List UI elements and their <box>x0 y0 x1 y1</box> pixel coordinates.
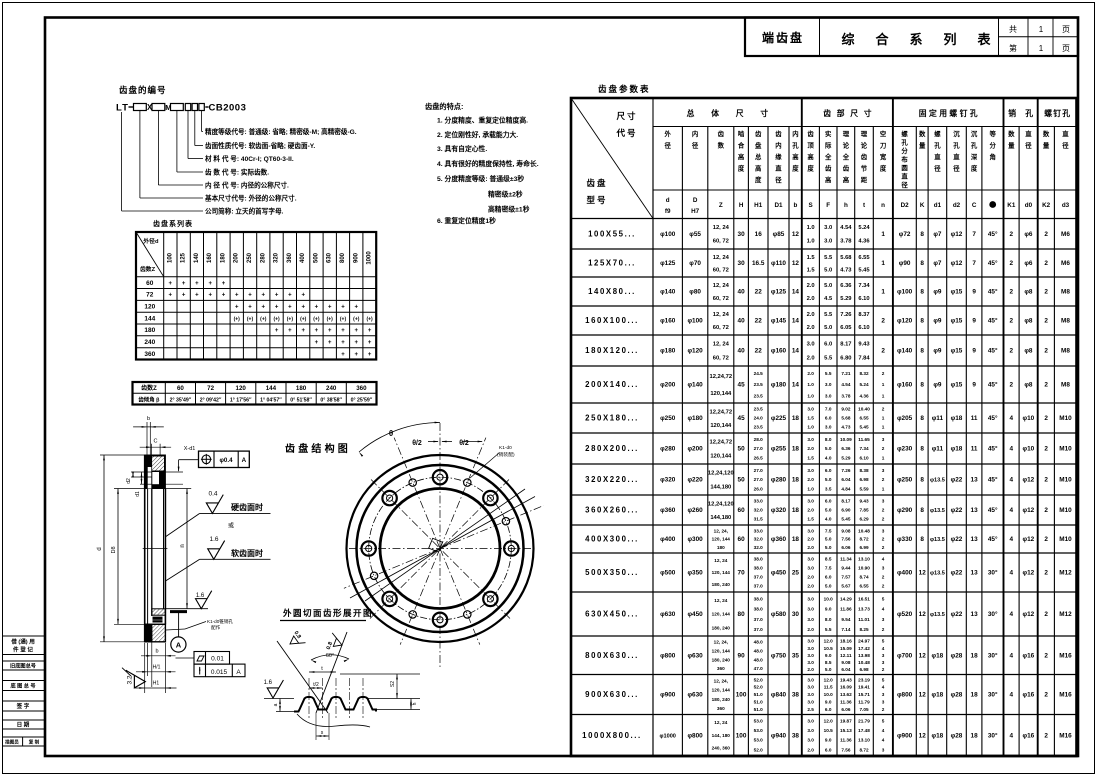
svg-text:齿盘参数表: 齿盘参数表 <box>598 84 651 94</box>
svg-text:9.43: 9.43 <box>858 342 870 348</box>
svg-text:θ/2: θ/2 <box>459 440 469 447</box>
svg-text:φ630: φ630 <box>687 653 703 660</box>
svg-text:+: + <box>262 305 266 311</box>
svg-text:φ160: φ160 <box>897 382 913 389</box>
svg-text:硬齿面时: 硬齿面时 <box>231 502 263 512</box>
svg-text:52.0: 52.0 <box>754 747 764 752</box>
svg-text:90: 90 <box>738 653 746 660</box>
svg-text:6. 重复定位精度1秒: 6. 重复定位精度1秒 <box>437 216 496 225</box>
svg-text:10.90: 10.90 <box>858 566 870 571</box>
svg-text:2.5: 2.5 <box>807 707 814 712</box>
svg-text:4.73: 4.73 <box>841 425 851 430</box>
svg-text:图: 图 <box>338 443 348 455</box>
svg-text:(+): (+) <box>247 316 254 322</box>
svg-text:5. 分度精度等级: 普通级±3秒: 5. 分度精度等级: 普通级±3秒 <box>437 174 524 183</box>
svg-text:内 径 代 号: 内径的公称尺寸.: 内 径 代 号: 内径的公称尺寸. <box>205 181 289 190</box>
svg-text:h: h <box>844 202 848 209</box>
svg-text:(+): (+) <box>313 316 320 322</box>
svg-text:3.0: 3.0 <box>807 660 814 665</box>
svg-text:φ290: φ290 <box>897 507 913 514</box>
svg-text:φ12: φ12 <box>1023 477 1035 484</box>
svg-text:120,144: 120,144 <box>710 454 732 460</box>
svg-text:2: 2 <box>1044 348 1048 355</box>
svg-text:9.0: 9.0 <box>825 653 832 658</box>
svg-text:a: a <box>273 703 279 706</box>
svg-text:φ16: φ16 <box>1023 733 1035 740</box>
svg-text:(+): (+) <box>287 316 294 322</box>
svg-text:3: 3 <box>882 700 885 705</box>
svg-text:8: 8 <box>920 348 924 355</box>
svg-text:4: 4 <box>882 607 885 612</box>
svg-text:1.0: 1.0 <box>807 394 814 399</box>
svg-text:280X200...: 280X200... <box>585 444 639 453</box>
svg-text:180: 180 <box>717 545 725 550</box>
svg-text:45°: 45° <box>988 259 998 267</box>
svg-text:240: 240 <box>144 339 155 346</box>
svg-text:齿面性质代号: 软齿面-省略; 硬齿面-Y.: 齿面性质代号: 软齿面-省略; 硬齿面-Y. <box>205 141 315 150</box>
svg-text:3: 3 <box>882 437 885 442</box>
svg-text:8.32: 8.32 <box>859 371 869 376</box>
svg-text:φ18: φ18 <box>951 446 963 453</box>
svg-text:+: + <box>301 328 305 334</box>
svg-text:齿数Z: 齿数Z <box>140 265 156 273</box>
svg-text:12.11: 12.11 <box>840 653 852 658</box>
svg-text:2.0: 2.0 <box>807 371 814 376</box>
svg-text:27.0: 27.0 <box>754 477 764 482</box>
svg-text:(+): (+) <box>260 316 267 322</box>
svg-text:φ6: φ6 <box>1024 231 1033 238</box>
svg-text:6.0: 6.0 <box>825 575 832 580</box>
svg-text:4.36: 4.36 <box>859 394 869 399</box>
svg-text:38: 38 <box>792 692 800 699</box>
svg-text:5.68: 5.68 <box>841 416 851 421</box>
svg-text:2: 2 <box>1044 611 1048 618</box>
svg-text:孔: 孔 <box>1062 108 1070 118</box>
svg-text:3.0: 3.0 <box>807 692 814 697</box>
svg-text:总: 总 <box>755 152 762 161</box>
svg-text:6.10: 6.10 <box>858 325 869 331</box>
svg-text:1.5: 1.5 <box>807 267 816 273</box>
svg-text:φ120: φ120 <box>897 318 913 325</box>
svg-text:5.29: 5.29 <box>840 296 852 302</box>
svg-text:+: + <box>195 281 199 287</box>
svg-text:9: 9 <box>972 318 976 325</box>
svg-text:12.0: 12.0 <box>824 677 834 682</box>
svg-text:5.5: 5.5 <box>824 312 833 318</box>
svg-text:理: 理 <box>861 129 868 138</box>
svg-text:800X630...: 800X630... <box>585 651 639 660</box>
svg-text:120, 144: 120, 144 <box>712 570 731 575</box>
svg-text:φ220: φ220 <box>687 477 703 484</box>
svg-text:M12: M12 <box>1059 570 1072 577</box>
svg-text:6.99: 6.99 <box>859 545 869 550</box>
svg-text:4: 4 <box>1010 733 1014 740</box>
svg-text:外圆切面齿形展开图: 外圆切面齿形展开图 <box>282 608 373 618</box>
svg-text:盘: 盘 <box>298 442 308 455</box>
svg-text:7.26: 7.26 <box>840 312 852 318</box>
svg-text:12,24,120: 12,24,120 <box>708 501 734 507</box>
svg-text:φ55: φ55 <box>689 231 701 238</box>
svg-text:3.0: 3.0 <box>807 468 814 473</box>
svg-text:1: 1 <box>881 289 885 296</box>
svg-text:26.0: 26.0 <box>754 487 764 492</box>
svg-text:6.04: 6.04 <box>841 667 851 672</box>
svg-text:φ400: φ400 <box>897 570 913 577</box>
svg-text:37.0: 37.0 <box>754 627 764 632</box>
svg-text:齿盘系列表: 齿盘系列表 <box>153 219 193 228</box>
svg-text:φ140: φ140 <box>897 348 913 355</box>
svg-text:45°: 45° <box>988 535 998 543</box>
svg-text:5.24: 5.24 <box>858 225 870 231</box>
svg-text:18: 18 <box>971 733 979 740</box>
svg-text:φ15: φ15 <box>951 289 963 296</box>
svg-text:0° 38′58″: 0° 38′58″ <box>320 398 342 404</box>
svg-text:30: 30 <box>792 611 800 618</box>
svg-text:3.0: 3.0 <box>807 528 814 533</box>
svg-text:38.0: 38.0 <box>754 557 764 562</box>
svg-text:H: H <box>739 202 744 209</box>
svg-text:基本尺寸代号: 外径的公称尺寸.: 基本尺寸代号: 外径的公称尺寸. <box>205 194 297 203</box>
svg-text:4: 4 <box>1010 446 1014 453</box>
svg-text:θ: θ <box>389 429 393 438</box>
svg-text:6.04: 6.04 <box>841 477 851 482</box>
svg-text:数: 数 <box>1043 129 1050 138</box>
svg-text:1: 1 <box>1039 44 1044 53</box>
svg-text:齿倾角 β: 齿倾角 β <box>138 396 160 404</box>
svg-text:630: 630 <box>327 252 333 263</box>
svg-text:φ260: φ260 <box>687 507 703 514</box>
svg-text:φ900: φ900 <box>897 733 913 740</box>
svg-text:φ125: φ125 <box>660 260 676 267</box>
svg-text:3.78: 3.78 <box>841 394 851 399</box>
svg-text:60: 60 <box>738 536 746 543</box>
svg-text:φ100: φ100 <box>687 318 703 325</box>
svg-text:A: A <box>236 669 241 676</box>
svg-text:160X100...: 160X100... <box>585 316 639 325</box>
svg-text:2.0: 2.0 <box>807 325 815 331</box>
svg-text:7.21: 7.21 <box>841 371 851 376</box>
svg-text:22: 22 <box>755 318 763 325</box>
svg-text:+: + <box>208 293 212 299</box>
svg-text:8: 8 <box>920 382 924 389</box>
svg-text:径: 径 <box>1062 141 1069 150</box>
svg-text:+: + <box>355 328 359 334</box>
svg-text:13.62: 13.62 <box>840 692 852 697</box>
svg-text:配作: 配作 <box>211 624 221 631</box>
svg-text:签 字: 签 字 <box>16 702 30 710</box>
svg-text:53.0: 53.0 <box>754 738 764 743</box>
svg-text:φ28: φ28 <box>951 653 963 660</box>
svg-text:12, 24,: 12, 24, <box>714 678 728 683</box>
svg-text:M16: M16 <box>1059 653 1072 660</box>
svg-text:2: 2 <box>882 537 885 542</box>
svg-text:500: 500 <box>313 252 319 263</box>
svg-text:22: 22 <box>755 348 763 355</box>
svg-text:18.16: 18.16 <box>840 639 852 644</box>
svg-text:2: 2 <box>1044 318 1048 325</box>
svg-text:1: 1 <box>881 260 885 267</box>
svg-text:C: C <box>154 439 158 445</box>
svg-text:120,144: 120,144 <box>710 423 732 429</box>
svg-text:尺寸: 尺寸 <box>615 111 637 121</box>
svg-text:φ16: φ16 <box>1023 692 1035 699</box>
svg-text:φ700: φ700 <box>897 653 913 660</box>
svg-text:2.0: 2.0 <box>807 508 814 513</box>
svg-text:2: 2 <box>882 545 885 550</box>
svg-text:180: 180 <box>144 327 155 334</box>
svg-text:+: + <box>355 305 359 311</box>
svg-text:9.54: 9.54 <box>841 617 851 622</box>
svg-text:数: 数 <box>1008 129 1015 138</box>
svg-text:6.98: 6.98 <box>859 667 869 672</box>
svg-text:4: 4 <box>882 738 885 743</box>
svg-text:40: 40 <box>738 289 746 296</box>
svg-text:齿: 齿 <box>718 129 725 138</box>
svg-text:2: 2 <box>1044 570 1048 577</box>
svg-text:30: 30 <box>738 231 746 238</box>
svg-text:高: 高 <box>825 175 832 184</box>
svg-text:5.0: 5.0 <box>825 508 832 513</box>
svg-text:圆: 圆 <box>901 163 908 172</box>
svg-text:度: 度 <box>880 164 887 173</box>
svg-text:+: + <box>355 352 359 358</box>
svg-text:2° 09′42″: 2° 09′42″ <box>200 398 222 404</box>
svg-text:论: 论 <box>843 141 850 150</box>
svg-text:+: + <box>341 305 345 311</box>
svg-text:60: 60 <box>146 280 154 287</box>
svg-text:8: 8 <box>920 536 924 543</box>
svg-text:φ12: φ12 <box>1023 536 1035 543</box>
svg-text:高精密级±1秒: 高精密级±1秒 <box>488 205 530 214</box>
svg-text:合: 合 <box>875 32 889 47</box>
svg-text:盘: 盘 <box>755 141 762 150</box>
svg-text:9: 9 <box>972 289 976 296</box>
svg-text:2: 2 <box>882 627 885 632</box>
svg-text:70: 70 <box>738 570 746 577</box>
svg-text:φ360: φ360 <box>660 507 676 514</box>
svg-text:27.0: 27.0 <box>754 446 764 451</box>
svg-text:6.0: 6.0 <box>825 468 832 473</box>
svg-text:φ100: φ100 <box>660 231 676 238</box>
svg-text:φ200: φ200 <box>660 382 676 389</box>
svg-text:+: + <box>328 305 332 311</box>
svg-text:0.4: 0.4 <box>208 491 217 498</box>
svg-text:3.0: 3.0 <box>807 646 814 651</box>
svg-text:尺: 尺 <box>850 109 858 118</box>
svg-text:直: 直 <box>901 172 908 181</box>
svg-text:3.2: 3.2 <box>127 675 134 684</box>
svg-text:17.48: 17.48 <box>858 728 870 733</box>
svg-text:11.79: 11.79 <box>858 700 870 705</box>
svg-text:360: 360 <box>144 351 155 358</box>
svg-text:螺: 螺 <box>901 129 908 138</box>
svg-text:2: 2 <box>882 517 885 522</box>
svg-text:φ400: φ400 <box>660 536 676 543</box>
svg-text:φ9: φ9 <box>933 382 942 389</box>
svg-text:2.0: 2.0 <box>807 575 814 580</box>
svg-text:144,180: 144,180 <box>710 515 731 521</box>
svg-text:d2: d2 <box>953 202 961 209</box>
svg-text:φ12: φ12 <box>1023 570 1035 577</box>
svg-text:+: + <box>355 340 359 346</box>
svg-text:顶: 顶 <box>807 141 814 150</box>
svg-text:0.01: 0.01 <box>211 656 224 663</box>
svg-text:1: 1 <box>882 487 885 492</box>
svg-text:52.0: 52.0 <box>754 685 764 690</box>
svg-text:2: 2 <box>1044 507 1048 514</box>
svg-text:1000X800...: 1000X800... <box>582 731 642 740</box>
svg-text:+: + <box>288 305 292 311</box>
svg-text:φ630: φ630 <box>687 692 703 699</box>
svg-text:φ100: φ100 <box>897 289 913 296</box>
svg-text:72: 72 <box>146 292 154 299</box>
svg-text:φ13.5: φ13.5 <box>930 571 945 577</box>
svg-text:径: 径 <box>934 164 941 173</box>
svg-text:0° 25′59″: 0° 25′59″ <box>351 398 373 404</box>
svg-text:120: 120 <box>144 304 155 311</box>
svg-text:1° 04′57″: 1° 04′57″ <box>260 398 282 404</box>
svg-text:400: 400 <box>300 252 306 263</box>
svg-text:φ18: φ18 <box>932 733 944 740</box>
svg-text:φ15: φ15 <box>951 318 963 325</box>
svg-text:51.0: 51.0 <box>754 707 764 712</box>
svg-text:28.0: 28.0 <box>754 437 764 442</box>
svg-text:+: + <box>182 281 186 287</box>
svg-text:15.09: 15.09 <box>840 646 852 651</box>
svg-text:32.0: 32.0 <box>754 545 764 550</box>
svg-text:+: + <box>301 293 305 299</box>
svg-text:3.0: 3.0 <box>825 394 832 399</box>
svg-text:+: + <box>275 305 279 311</box>
svg-text:3: 3 <box>882 747 885 752</box>
svg-text:φ9: φ9 <box>933 348 942 355</box>
svg-text:3.0: 3.0 <box>807 685 814 690</box>
svg-text:销: 销 <box>1008 108 1016 118</box>
svg-text:52.0: 52.0 <box>754 677 764 682</box>
svg-text:φ90: φ90 <box>899 260 911 267</box>
svg-text:2.0: 2.0 <box>807 477 814 482</box>
svg-text:31.5: 31.5 <box>754 517 764 522</box>
svg-text:M8: M8 <box>1061 289 1070 296</box>
svg-text:40: 40 <box>738 318 746 325</box>
svg-text:3.0: 3.0 <box>807 738 814 743</box>
svg-text:8.5: 8.5 <box>825 557 832 562</box>
svg-text:D1: D1 <box>774 202 783 209</box>
svg-text:6.0: 6.0 <box>825 747 832 752</box>
svg-text:5.0: 5.0 <box>824 325 832 331</box>
svg-text:2: 2 <box>1044 231 1048 238</box>
svg-text:1. 分度精度、重复定位精度高.: 1. 分度精度、重复定位精度高. <box>437 116 528 125</box>
svg-text:8: 8 <box>920 318 924 325</box>
svg-text:+: + <box>222 281 226 287</box>
svg-text:8: 8 <box>920 289 924 296</box>
svg-text:250X180...: 250X180... <box>585 414 639 423</box>
svg-text:φ28: φ28 <box>951 692 963 699</box>
svg-text:(+): (+) <box>366 316 373 322</box>
svg-text:+: + <box>275 328 279 334</box>
svg-text:30°: 30° <box>988 691 998 699</box>
svg-text:借 (通) 用: 借 (通) 用 <box>10 638 35 646</box>
svg-text:60: 60 <box>738 507 746 514</box>
svg-text:2.0: 2.0 <box>807 545 814 550</box>
svg-text:M10: M10 <box>1059 536 1072 543</box>
svg-text:51.0: 51.0 <box>754 692 764 697</box>
svg-text:18: 18 <box>792 477 800 484</box>
svg-text:51.0: 51.0 <box>754 700 764 705</box>
svg-text:27.0: 27.0 <box>754 468 764 473</box>
svg-text:4: 4 <box>1010 692 1014 699</box>
svg-text:5.68: 5.68 <box>840 255 852 261</box>
svg-text:布: 布 <box>901 155 908 164</box>
svg-text:14: 14 <box>792 289 800 296</box>
svg-text:33.0: 33.0 <box>754 528 764 533</box>
svg-text:144: 144 <box>144 315 155 322</box>
svg-text:φ12: φ12 <box>1023 611 1035 618</box>
svg-text:2: 2 <box>882 667 885 672</box>
svg-text:8.5: 8.5 <box>825 660 832 665</box>
svg-text:2: 2 <box>1010 231 1014 238</box>
svg-text:φ22: φ22 <box>951 507 963 514</box>
svg-text:φ11: φ11 <box>932 446 944 453</box>
svg-text:8: 8 <box>920 477 924 484</box>
svg-text:d0: d0 <box>1025 202 1033 209</box>
svg-text:3: 3 <box>882 528 885 533</box>
svg-text:47.0: 47.0 <box>754 666 764 671</box>
svg-text:2: 2 <box>881 348 885 355</box>
svg-text:5.5: 5.5 <box>824 356 833 362</box>
svg-text:5.0: 5.0 <box>825 446 832 451</box>
svg-text:12,24,72: 12,24,72 <box>710 440 733 446</box>
svg-text:共: 共 <box>1009 25 1017 34</box>
svg-text:尺: 尺 <box>736 109 744 118</box>
svg-text:2: 2 <box>882 477 885 482</box>
svg-text:5.45: 5.45 <box>841 517 851 522</box>
svg-text:2: 2 <box>882 575 885 580</box>
svg-text:12, 24: 12, 24 <box>713 283 730 289</box>
svg-text:孔: 孔 <box>970 108 978 118</box>
svg-text:12,24,120: 12,24,120 <box>708 471 734 477</box>
svg-text:11.34: 11.34 <box>840 557 852 562</box>
svg-text:齿: 齿 <box>775 129 782 138</box>
svg-text:径: 径 <box>1025 141 1032 150</box>
svg-text:n: n <box>180 544 186 547</box>
svg-text:角: 角 <box>990 152 996 161</box>
svg-text:11: 11 <box>971 415 978 422</box>
svg-text:+: + <box>169 293 173 299</box>
svg-text:深: 深 <box>971 152 978 161</box>
svg-text:1: 1 <box>1039 25 1044 34</box>
svg-text:7.5: 7.5 <box>825 528 832 533</box>
svg-text:或: 或 <box>228 522 234 530</box>
svg-text:2: 2 <box>1044 260 1048 267</box>
svg-text:2: 2 <box>882 508 885 513</box>
svg-text:(+): (+) <box>340 316 347 322</box>
svg-text:φ125: φ125 <box>771 289 787 296</box>
svg-text:LT: LT <box>116 103 129 114</box>
svg-text:6.80: 6.80 <box>840 356 851 362</box>
svg-text:高: 高 <box>807 152 814 161</box>
svg-text:8.25: 8.25 <box>859 627 869 632</box>
svg-text:240, 360: 240, 360 <box>712 746 731 751</box>
svg-text:M10: M10 <box>1059 507 1072 514</box>
svg-text:60, 72: 60, 72 <box>713 239 729 245</box>
svg-text:45: 45 <box>738 415 746 422</box>
svg-text:页: 页 <box>1062 44 1070 53</box>
svg-text:12: 12 <box>919 611 927 618</box>
svg-text:16.09: 16.09 <box>840 685 852 690</box>
svg-text:4: 4 <box>882 728 885 733</box>
svg-text:2: 2 <box>882 446 885 451</box>
